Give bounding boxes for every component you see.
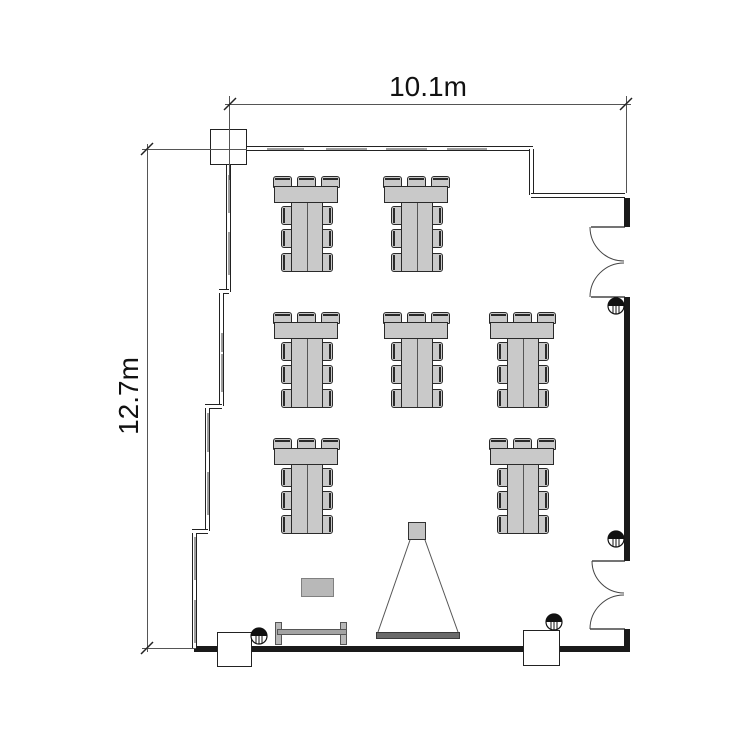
head-table [490,322,554,339]
head-table [274,322,338,339]
head-table [384,186,448,203]
bench [277,629,347,635]
pipe-symbol [546,614,562,630]
extension-line [229,96,230,180]
projection-screen [376,632,460,639]
window [221,333,223,352]
wall-bottom [194,646,630,652]
wall-right-middle [624,297,630,561]
door-swing-lower [590,561,624,629]
table-group [489,438,557,535]
window [267,148,304,150]
long-table [291,338,323,408]
head-table [274,186,338,203]
pipe-symbol [608,298,624,314]
door-swing-upper [590,227,624,297]
dimension-line-horizontal [225,104,631,105]
long-table [291,202,323,272]
window [386,148,427,150]
wall-step-horizontal [531,193,625,198]
table-group [489,312,557,409]
column-bottom-left [217,632,252,667]
table-group [383,312,451,409]
table-group [273,176,341,273]
head-table [274,448,338,465]
projector [408,522,426,540]
door-jambs [590,227,625,629]
wall-right-upper [624,198,630,227]
window [194,537,196,580]
window [221,354,223,392]
extension-line [142,648,196,649]
extension-line [142,149,247,150]
height-dimension-label: 12.7m [114,316,144,476]
table-group [273,312,341,409]
table-group [383,176,451,273]
window [228,175,230,213]
long-table [507,464,539,534]
side-table [301,578,334,597]
window [207,413,209,452]
width-dimension-label: 10.1m [348,72,508,102]
dimension-line-vertical [147,144,148,652]
pipe-symbol [608,531,624,547]
window [207,472,209,515]
window [228,232,230,275]
pipe-symbol [251,628,267,644]
extension-line [626,96,627,193]
window [194,600,196,643]
table-group [273,438,341,535]
long-table [507,338,539,408]
window [447,148,487,150]
column-bottom-right [523,630,560,666]
wall-step-vertical [529,149,534,195]
head-table [490,448,554,465]
long-table [291,464,323,534]
projection-beam [378,540,458,632]
long-table [401,338,433,408]
window [326,148,367,150]
head-table [384,322,448,339]
long-table [401,202,433,272]
floor-plan: 10.1m 12.7m [0,0,750,750]
